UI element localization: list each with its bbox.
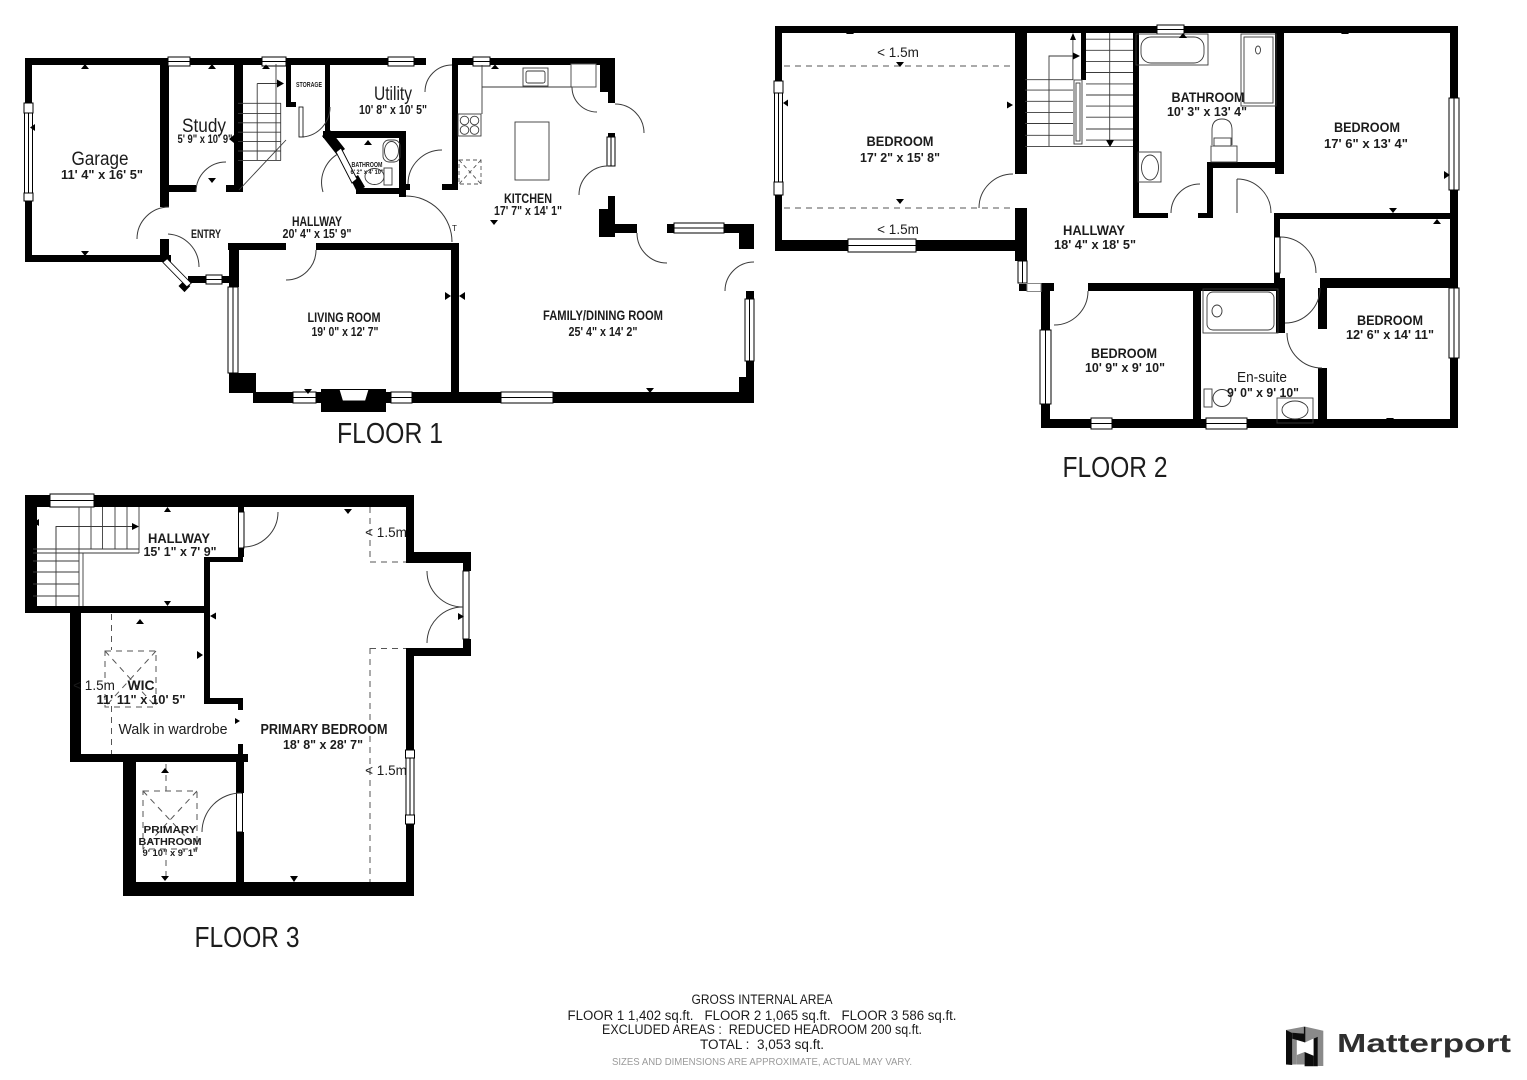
- svg-text:Matterport: Matterport: [1337, 1028, 1511, 1058]
- svg-text:PRIMARY: PRIMARY: [144, 824, 197, 836]
- svg-text:< 1.5m: < 1.5m: [365, 525, 407, 540]
- svg-text:15' 1" x 7' 9": 15' 1" x 7' 9": [144, 545, 217, 559]
- svg-text:BEDROOM: BEDROOM: [1091, 346, 1157, 361]
- svg-text:FAMILY/DINING ROOM: FAMILY/DINING ROOM: [543, 308, 663, 323]
- svg-text:17' 7" x 14' 1": 17' 7" x 14' 1": [494, 204, 562, 218]
- svg-text:BEDROOM: BEDROOM: [1357, 313, 1423, 328]
- svg-text:11' 11" x 10' 5": 11' 11" x 10' 5": [97, 693, 186, 707]
- svg-text:18' 4" x 18' 5": 18' 4" x 18' 5": [1054, 238, 1136, 252]
- svg-text:< 1.5m: < 1.5m: [73, 678, 115, 693]
- svg-text:25' 4" x 14' 2": 25' 4" x 14' 2": [569, 325, 638, 339]
- svg-text:BATHROOM: BATHROOM: [139, 836, 202, 848]
- svg-text:BATHROOM: BATHROOM: [1172, 90, 1245, 105]
- svg-text:EXCLUDED AREAS : REDUCED HEAD: EXCLUDED AREAS : REDUCED HEADROOM 200 sq…: [602, 1022, 922, 1037]
- svg-text:< 1.5m: < 1.5m: [365, 763, 407, 778]
- svg-text:LIVING ROOM: LIVING ROOM: [308, 310, 381, 325]
- svg-text:9' 10" x 9' 1": 9' 10" x 9' 1": [143, 848, 198, 858]
- svg-text:FLOOR 3: FLOOR 3: [195, 922, 300, 954]
- svg-text:< 1.5m: < 1.5m: [877, 222, 919, 237]
- svg-text:5' 9" x 10' 9": 5' 9" x 10' 9": [178, 134, 233, 146]
- svg-text:STORAGE: STORAGE: [296, 80, 322, 89]
- svg-text:Garage: Garage: [72, 149, 129, 170]
- svg-text:FLOOR 2: FLOOR 2: [1063, 452, 1168, 484]
- svg-text:TOTAL : 3,053 sq.ft.: TOTAL : 3,053 sq.ft.: [700, 1037, 824, 1052]
- svg-text:T: T: [452, 224, 457, 233]
- svg-text:18' 8" x 28' 7": 18' 8" x 28' 7": [283, 738, 363, 752]
- svg-text:17' 2" x 15' 8": 17' 2" x 15' 8": [860, 151, 940, 165]
- svg-text:10' 9" x 9' 10": 10' 9" x 9' 10": [1085, 361, 1165, 375]
- svg-text:BEDROOM: BEDROOM: [867, 134, 934, 149]
- svg-text:< 1.5m: < 1.5m: [877, 45, 919, 60]
- svg-text:19' 0" x 12' 7": 19' 0" x 12' 7": [312, 325, 379, 339]
- svg-text:PRIMARY BEDROOM: PRIMARY BEDROOM: [261, 722, 388, 738]
- svg-text:FLOOR 1 1,402 sq.ft. FLOOR 2: FLOOR 1 1,402 sq.ft. FLOOR 2 1,065 sq.ft…: [568, 1008, 957, 1023]
- svg-text:BEDROOM: BEDROOM: [1334, 120, 1400, 135]
- svg-text:Walk in wardrobe: Walk in wardrobe: [119, 721, 228, 738]
- svg-text:6' 2" x 4' 10": 6' 2" x 4' 10": [351, 169, 384, 176]
- svg-text:9' 0" x 9' 10": 9' 0" x 9' 10": [1227, 386, 1299, 400]
- svg-text:En-suite: En-suite: [1237, 369, 1287, 386]
- svg-text:FLOOR 1: FLOOR 1: [337, 418, 443, 450]
- svg-text:20' 4" x 15' 9": 20' 4" x 15' 9": [283, 227, 352, 241]
- svg-text:10' 3" x 13' 4": 10' 3" x 13' 4": [1167, 105, 1247, 119]
- svg-text:HALLWAY: HALLWAY: [148, 531, 210, 546]
- svg-text:Utility: Utility: [374, 84, 412, 105]
- svg-text:GROSS INTERNAL AREA: GROSS INTERNAL AREA: [692, 992, 833, 1007]
- svg-text:HALLWAY: HALLWAY: [1063, 223, 1125, 238]
- svg-text:SIZES AND DIMENSIONS ARE APPRO: SIZES AND DIMENSIONS ARE APPROXIMATE, AC…: [612, 1057, 912, 1068]
- svg-text:12' 6" x 14' 11": 12' 6" x 14' 11": [1346, 328, 1434, 342]
- svg-text:17' 6" x 13' 4": 17' 6" x 13' 4": [1324, 137, 1408, 151]
- svg-text:WIC: WIC: [128, 678, 155, 693]
- svg-text:11' 4" x 16' 5": 11' 4" x 16' 5": [61, 168, 143, 182]
- svg-text:ENTRY: ENTRY: [191, 227, 221, 241]
- svg-text:BATHROOM: BATHROOM: [352, 160, 383, 169]
- svg-text:10' 8" x 10' 5": 10' 8" x 10' 5": [359, 103, 427, 117]
